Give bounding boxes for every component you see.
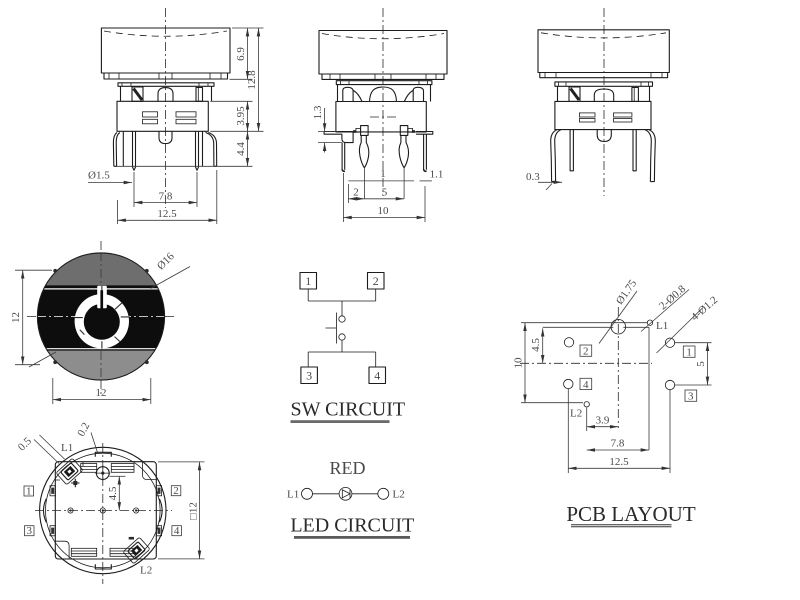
svg-text:12: 12 bbox=[10, 312, 22, 323]
svg-text:4: 4 bbox=[374, 369, 380, 383]
svg-text:Ø16: Ø16 bbox=[155, 250, 177, 272]
svg-text:4-Ø1.2: 4-Ø1.2 bbox=[689, 294, 720, 323]
svg-text:7.8: 7.8 bbox=[611, 438, 625, 450]
svg-text:2: 2 bbox=[583, 346, 589, 358]
svg-text:1: 1 bbox=[380, 168, 386, 180]
svg-text:3.9: 3.9 bbox=[596, 415, 610, 427]
svg-text:4: 4 bbox=[583, 379, 589, 391]
svg-text:PCB LAYOUT: PCB LAYOUT bbox=[566, 502, 696, 526]
svg-text:1.3: 1.3 bbox=[312, 105, 324, 119]
svg-text:2: 2 bbox=[373, 274, 379, 288]
svg-text:LED CIRCUIT: LED CIRCUIT bbox=[290, 515, 414, 537]
svg-text:L1: L1 bbox=[656, 320, 668, 332]
svg-text:2-Ø0.8: 2-Ø0.8 bbox=[657, 283, 689, 313]
svg-text:4.5: 4.5 bbox=[530, 338, 542, 352]
svg-text:12: 12 bbox=[96, 387, 107, 399]
svg-text:5: 5 bbox=[382, 186, 388, 198]
svg-text:12.5: 12.5 bbox=[609, 456, 629, 468]
svg-text:10: 10 bbox=[513, 357, 525, 369]
svg-text:3: 3 bbox=[688, 391, 694, 403]
svg-text:1: 1 bbox=[26, 486, 32, 498]
svg-text:1.1: 1.1 bbox=[430, 168, 444, 180]
svg-text:0.5: 0.5 bbox=[16, 435, 35, 454]
svg-text:2: 2 bbox=[353, 186, 359, 198]
svg-text:2: 2 bbox=[173, 485, 179, 497]
svg-text:12.5: 12.5 bbox=[157, 208, 177, 220]
svg-text:7.8: 7.8 bbox=[159, 191, 173, 203]
svg-text:□12: □12 bbox=[188, 502, 200, 520]
svg-text:0.3: 0.3 bbox=[526, 171, 540, 183]
svg-text:3: 3 bbox=[26, 525, 32, 537]
svg-text:SW CIRCUIT: SW CIRCUIT bbox=[290, 399, 405, 421]
svg-text:Ø1.75: Ø1.75 bbox=[614, 277, 640, 307]
svg-text:L1: L1 bbox=[61, 442, 73, 454]
svg-text:Ø1.5: Ø1.5 bbox=[88, 170, 110, 182]
svg-text:L2: L2 bbox=[140, 565, 152, 577]
svg-text:6.9: 6.9 bbox=[235, 47, 247, 61]
svg-text:4.4: 4.4 bbox=[235, 142, 247, 156]
svg-text:0.2: 0.2 bbox=[75, 421, 92, 439]
svg-text:L1: L1 bbox=[287, 489, 299, 501]
svg-text:1: 1 bbox=[686, 347, 692, 359]
svg-text:L2: L2 bbox=[393, 489, 405, 501]
svg-text:5: 5 bbox=[695, 361, 707, 367]
svg-text:4.5: 4.5 bbox=[107, 486, 119, 500]
svg-text:3.95: 3.95 bbox=[235, 106, 247, 126]
svg-text:10: 10 bbox=[378, 205, 390, 217]
svg-text:12.8: 12.8 bbox=[246, 70, 258, 90]
svg-text:3: 3 bbox=[306, 369, 312, 383]
svg-text:L2: L2 bbox=[570, 408, 582, 420]
svg-text:4: 4 bbox=[174, 525, 180, 537]
svg-text:1: 1 bbox=[305, 274, 311, 288]
svg-text:RED: RED bbox=[330, 458, 366, 478]
